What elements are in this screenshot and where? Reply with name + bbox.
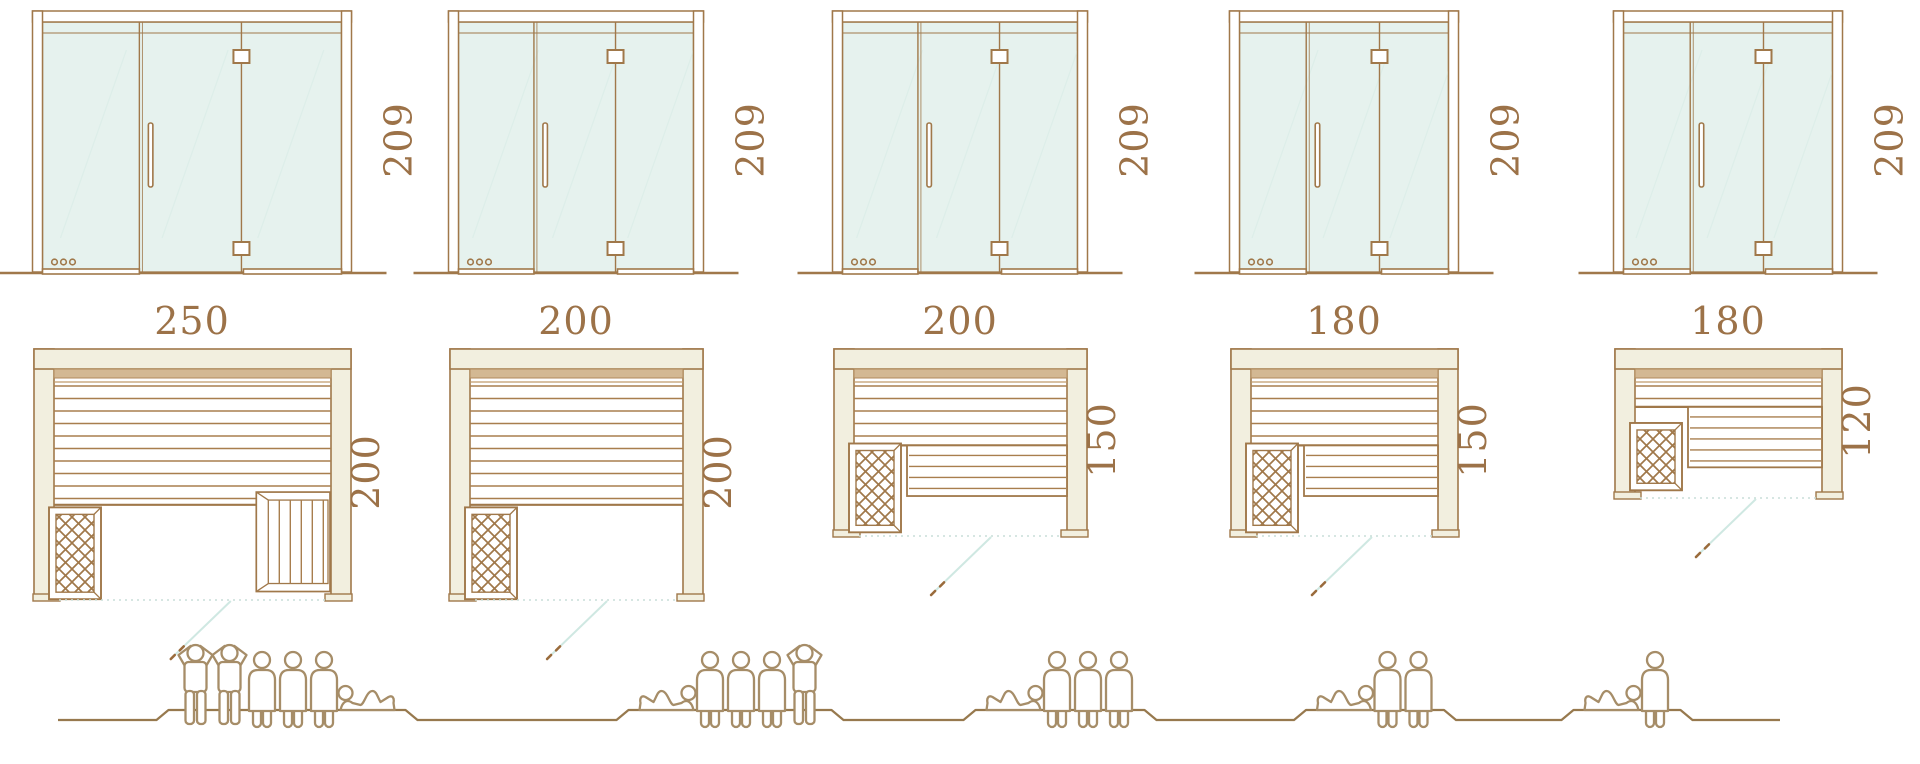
sauna-front-elevation-drawing (0, 6, 387, 278)
door-leaf-mark (931, 591, 935, 595)
top-beam (1614, 11, 1843, 22)
standing-person-icon (213, 645, 247, 724)
sauna-floor-plan: 180 120 (1536, 296, 1920, 581)
sauna-floor-plan: 200 150 (768, 296, 1152, 619)
bottom-rail-right (618, 269, 694, 274)
hinge-icon (233, 242, 249, 255)
sitting-person-icon (1642, 652, 1668, 727)
door-handle (927, 123, 932, 187)
door-handle (148, 123, 153, 187)
width-dimension-label: 200 (768, 296, 1152, 348)
bottom-rail-right (1765, 269, 1832, 274)
width-dimension-label: 180 (1152, 296, 1536, 348)
bottom-rail-left (459, 269, 534, 274)
sauna-floor-plan-drawing (33, 348, 352, 683)
right-post (1833, 11, 1843, 272)
door-handle (1699, 123, 1704, 187)
door-height-label: 209 (1113, 90, 1157, 190)
sauna-floor-plan-drawing (1230, 348, 1459, 619)
door-handle (1315, 123, 1320, 187)
hinge-icon (992, 242, 1008, 255)
door-leaf-mark (1704, 544, 1708, 548)
standing-person-icon (788, 645, 822, 724)
hinge-icon (608, 50, 624, 63)
bottom-rail-right (1002, 269, 1078, 274)
back-bench-edge (1251, 369, 1438, 378)
glass-front (43, 22, 342, 272)
sitting-person-icon (1044, 652, 1070, 727)
right-post (694, 11, 704, 272)
sauna-front-elevation: 209 (414, 6, 739, 278)
standing-person-icon (179, 645, 213, 724)
back-wall (450, 349, 703, 369)
sauna-floor-plan-drawing (1614, 348, 1843, 581)
left-post (449, 11, 459, 272)
hinge-icon (233, 50, 249, 63)
sitting-person-icon (311, 652, 337, 727)
glass-front (1240, 22, 1449, 272)
bottom-rail-right (243, 269, 341, 274)
depth-dimension-label: 200 (696, 422, 740, 522)
right-post (1449, 11, 1459, 272)
door-height-label: 209 (729, 90, 773, 190)
bottom-rail-left (1624, 269, 1691, 274)
hinge-icon (1755, 242, 1771, 255)
lying-person-icon (339, 686, 395, 710)
glass-front (843, 22, 1078, 272)
depth-dimension-label: 200 (344, 422, 388, 522)
sauna-front-elevation: 209 (1579, 6, 1878, 278)
bottom-rail-left (43, 269, 140, 274)
heater-icon (49, 507, 101, 599)
sitting-person-icon (1075, 652, 1101, 727)
width-dimension-label: 250 (0, 296, 384, 348)
lying-person-icon (640, 686, 696, 710)
sitting-person-icon (280, 652, 306, 727)
sitting-person-icon (249, 652, 275, 727)
lying-person-icon (1585, 686, 1641, 710)
bottom-rail-left (843, 269, 918, 274)
hinge-icon (992, 50, 1008, 63)
width-dimension-label: 180 (1536, 296, 1920, 348)
door-swing-line (1311, 537, 1371, 595)
wall-foot (1061, 530, 1088, 537)
sauna-floor-plan-drawing (449, 348, 704, 683)
sitting-person-icon (697, 652, 723, 727)
door-swing-line (931, 537, 991, 595)
back-bench-edge (1635, 369, 1822, 378)
door-swing-line (1695, 499, 1755, 557)
left-post (833, 11, 843, 272)
heater-icon (1630, 423, 1682, 490)
hinge-icon (1371, 242, 1387, 255)
wall-foot (1816, 492, 1843, 499)
lying-person-icon (1317, 686, 1373, 710)
sitting-person-icon (1106, 652, 1132, 727)
capacity-figures-strip (0, 634, 1920, 764)
sauna-front-elevation: 209 (0, 6, 387, 278)
sauna-front-elevation: 209 (1195, 6, 1494, 278)
left-post (33, 11, 43, 272)
sauna-front-elevation-drawing (414, 6, 739, 278)
width-dimension-label: 200 (384, 296, 768, 348)
capacity-group (1585, 652, 1669, 727)
sauna-floor-plan: 180 150 (1152, 296, 1536, 619)
back-wall (834, 349, 1087, 369)
glass-front (1624, 22, 1833, 272)
hinge-icon (1371, 50, 1387, 63)
door-leaf-mark (940, 582, 944, 586)
hinge-icon (608, 242, 624, 255)
wall-foot (1614, 492, 1641, 499)
lying-person-icon (987, 686, 1043, 710)
heater-icon (849, 444, 901, 533)
back-wall (1231, 349, 1458, 369)
back-wall (34, 349, 351, 369)
heater-icon (1246, 444, 1298, 533)
wall-foot (1432, 530, 1459, 537)
heater-icon (465, 507, 517, 599)
door-leaf-mark (1320, 582, 1324, 586)
glass-front (459, 22, 694, 272)
sauna-front-elevation-drawing (798, 6, 1123, 278)
sitting-person-icon (759, 652, 785, 727)
sauna-floor-plan: 250 200 (0, 296, 384, 683)
door-height-label: 209 (1484, 90, 1528, 190)
hinge-icon (1755, 50, 1771, 63)
door-leaf-mark (1311, 591, 1315, 595)
sauna-floor-plan: 200 200 (384, 296, 768, 683)
back-wall (1615, 349, 1842, 369)
bottom-rail-right (1381, 269, 1448, 274)
sauna-front-elevation-drawing (1579, 6, 1878, 278)
side-bench (256, 492, 330, 591)
sauna-front-elevation: 209 (798, 6, 1123, 278)
wall-foot (677, 594, 704, 601)
door-handle (543, 123, 548, 187)
sauna-floor-plan-drawing (833, 348, 1088, 619)
depth-dimension-label: 150 (1451, 390, 1495, 490)
left-post (1614, 11, 1624, 272)
back-bench-edge (54, 369, 331, 378)
capacity-group (179, 645, 395, 727)
lower-bench (1688, 407, 1822, 467)
depth-dimension-label: 150 (1080, 390, 1124, 490)
top-beam (1230, 11, 1459, 22)
sitting-person-icon (728, 652, 754, 727)
depth-dimension-label: 120 (1835, 371, 1879, 471)
door-height-label: 209 (1868, 90, 1912, 190)
left-post (1230, 11, 1240, 272)
sitting-person-icon (1375, 652, 1401, 727)
capacity-group (640, 645, 822, 727)
wall-foot (325, 594, 352, 601)
top-beam (449, 11, 704, 22)
sitting-person-icon (1406, 652, 1432, 727)
right-post (1078, 11, 1088, 272)
back-bench-edge (470, 369, 683, 378)
top-beam (833, 11, 1088, 22)
right-post (342, 11, 352, 272)
bottom-rail-left (1240, 269, 1307, 274)
capacity-group (987, 652, 1133, 727)
top-beam (33, 11, 352, 22)
back-bench-edge (854, 369, 1067, 378)
capacity-group (1317, 652, 1432, 727)
sauna-front-elevation-drawing (1195, 6, 1494, 278)
door-leaf-mark (1695, 553, 1699, 557)
